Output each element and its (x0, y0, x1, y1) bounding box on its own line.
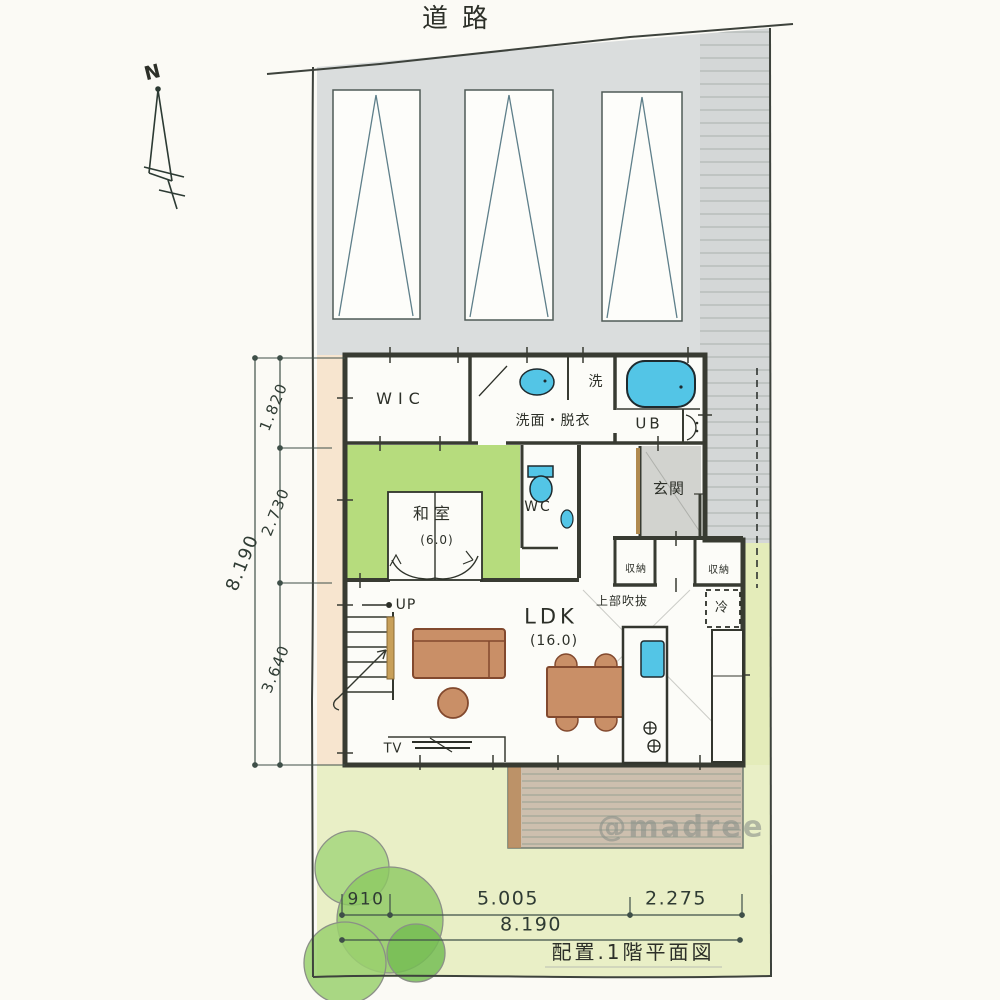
washbasin (520, 369, 554, 395)
room-label-laundry: 洗 (589, 375, 604, 389)
toilet (528, 466, 553, 502)
parking-stalls (333, 90, 682, 321)
label-stairs-up: UP (396, 598, 417, 612)
sofa (413, 629, 505, 678)
wc-hand-basin (561, 510, 573, 528)
road-label: 道路 (422, 6, 502, 32)
approach-hatch (700, 28, 771, 543)
drawing-caption: 配置.1階平面図 (551, 942, 714, 962)
room-label-washitsu-size: (6.0) (420, 534, 453, 546)
boundary-right (770, 28, 771, 977)
bathtub (627, 361, 695, 407)
watermark: @madree (597, 813, 764, 842)
room-label-ldk: LDK (524, 607, 578, 628)
north-arrow-icon (144, 87, 185, 209)
dim-bottom-total: 8.190 (500, 916, 562, 935)
site-plan-drawing (0, 0, 1000, 1000)
dim-bottom-seg-2: 5.005 (477, 890, 539, 909)
room-label-ldk-size: (16.0) (530, 634, 578, 648)
dim-bottom-seg-3: 2.275 (645, 890, 707, 909)
kitchen-sink (641, 641, 664, 677)
kitchen-back-counter (712, 630, 743, 762)
room-label-genkan: 玄関 (653, 482, 685, 497)
room-label-ub: UB (635, 417, 662, 432)
room-label-storage-a: 収納 (625, 565, 647, 575)
room-label-wic: WIC (376, 391, 426, 407)
genkan-step-edge (636, 448, 640, 534)
boundary-left (312, 67, 313, 977)
room-label-washitsu: 和室 (413, 506, 455, 522)
label-fridge: 冷 (715, 602, 729, 615)
label-tv: TV (384, 743, 403, 756)
label-void-above: 上部吹抜 (596, 595, 648, 607)
side-path-soil (317, 355, 345, 765)
room-label-senmen: 洗面・脱衣 (516, 414, 591, 428)
kitchen-island (623, 627, 667, 763)
round-table (438, 688, 468, 718)
room-label-storage-b: 収納 (708, 566, 730, 576)
room-label-wc: WC (524, 500, 552, 514)
dim-bottom-seg-1: 910 (348, 892, 385, 909)
floor-plan-canvas: 道路 N WIC 洗面・脱衣 洗 UB 和室 (6.0) WC 玄関 収納 収納… (0, 0, 1000, 1000)
